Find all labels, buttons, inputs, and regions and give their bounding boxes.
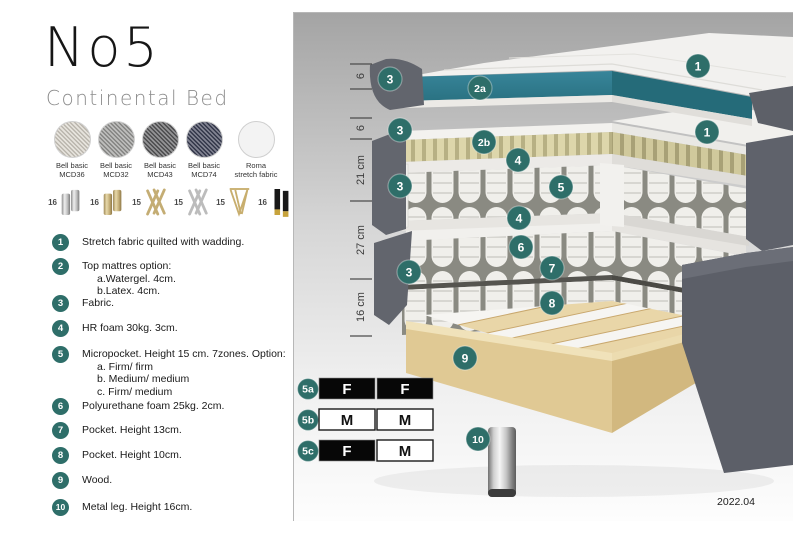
callout-badge: 7 (540, 256, 564, 280)
fabric-name: Bell basic (188, 161, 220, 170)
product-subtitle: Continental Bed (46, 86, 229, 110)
firmness-cell: M (399, 412, 412, 429)
callout-badge: 2a (468, 76, 492, 100)
spec-text: Micropocket. Height 15 cm. 7zones. Optio… (82, 346, 286, 361)
spec-number-badge: 7 (52, 422, 69, 439)
fabric-swatch-circle (98, 121, 135, 158)
spec-item: 2 Top mattres option: a.Watergel. 4cm. b… (52, 258, 176, 298)
firmness-row-label: 5a (302, 384, 314, 396)
leg-height-label: 15 (212, 198, 225, 207)
spec-item: 10 Metal leg. Height 16cm. (52, 499, 192, 516)
fabric-code: stretch fabric (235, 170, 278, 179)
cylinder-gold-legs-icon (100, 186, 126, 218)
dimension-label: 6 (355, 73, 367, 79)
callout-badge: 3 (378, 67, 402, 91)
leg-height-label: 16 (44, 198, 57, 207)
callout-badge: 2b (472, 130, 496, 154)
fabric-swatch: Romastretch fabric (234, 121, 278, 179)
callout-badge: 1 (695, 120, 719, 144)
firmness-table: 5a F F 5b M M 5c F M (298, 378, 434, 462)
firmness-row-label: 5b (302, 415, 314, 427)
svg-text:1: 1 (695, 60, 702, 74)
leg-option: 16 (254, 186, 294, 218)
spec-option: c. Firm/ medium (97, 386, 286, 399)
front-leg (488, 427, 516, 497)
spec-number-badge: 2 (52, 258, 69, 275)
svg-text:3: 3 (397, 124, 404, 138)
spec-text: HR foam 30kg. 3cm. (82, 320, 178, 335)
bed-diagram-panel: 6 6 21 cm 27 cm 16 cm 3 2a 1 3 2b 1 4 5 … (293, 12, 793, 521)
fabric-name: Bell basic (144, 161, 176, 170)
spec-text: Fabric. (82, 295, 114, 310)
fabric-swatch-circle (238, 121, 275, 158)
spec-number-badge: 3 (52, 295, 69, 312)
spec-number-badge: 10 (52, 499, 69, 516)
svg-text:2b: 2b (478, 137, 490, 149)
cylinder-silver-legs-icon (58, 186, 84, 218)
svg-text:8: 8 (549, 297, 556, 311)
spec-number-badge: 8 (52, 447, 69, 464)
fabric-swatch-circle (186, 121, 223, 158)
leg-option: 15 (170, 186, 210, 218)
spec-sheet: No5 Continental Bed Bell basicMCD36 (0, 0, 800, 533)
leg-option: 15 (128, 186, 168, 218)
svg-text:10: 10 (472, 434, 484, 446)
callout-badge: 5 (549, 175, 573, 199)
spec-item: 5 Micropocket. Height 15 cm. 7zones. Opt… (52, 346, 286, 398)
callout-badge: 4 (506, 148, 530, 172)
fabric-swatch-circle (142, 121, 179, 158)
spec-item: 3 Fabric. (52, 295, 114, 312)
fabric-name: Bell basic (56, 161, 88, 170)
dimension-label: 6 (355, 125, 367, 131)
svg-text:4: 4 (516, 212, 523, 226)
version-label: 2022.04 (717, 496, 755, 508)
fabric-code: MCD74 (191, 170, 216, 179)
leg-height-label: 15 (170, 198, 183, 207)
firmness-cell: M (341, 412, 354, 429)
firmness-cell: F (342, 443, 351, 460)
svg-text:9: 9 (462, 352, 469, 366)
leg-height-label: 15 (128, 198, 141, 207)
spec-option: b. Medium/ medium (97, 373, 286, 386)
spec-number-badge: 9 (52, 472, 69, 489)
spec-item: 9 Wood. (52, 472, 112, 489)
floor-shadow (374, 465, 774, 497)
spec-item: 7 Pocket. Height 13cm. (52, 422, 182, 439)
callout-badge: 1 (686, 54, 710, 78)
svg-text:3: 3 (387, 73, 394, 87)
spec-option: a.Watergel. 4cm. (97, 273, 176, 286)
fabric-swatch-circle (54, 121, 91, 158)
leg-height-label: 16 (86, 198, 99, 207)
fabric-swatches: Bell basicMCD36 Bell basicMCD32 Bell bas… (50, 121, 278, 179)
spec-item: 1 Stretch fabric quilted with wadding. (52, 234, 244, 251)
svg-text:1: 1 (704, 126, 711, 140)
svg-text:4: 4 (515, 154, 522, 168)
spec-text: Stretch fabric quilted with wadding. (82, 234, 244, 249)
firmness-row-label: 5c (302, 446, 314, 458)
spec-text: Metal leg. Height 16cm. (82, 499, 192, 514)
spec-number-badge: 5 (52, 346, 69, 363)
fabric-name: Roma (246, 161, 266, 170)
spec-text: Wood. (82, 472, 112, 487)
tapered-black-legs-icon (268, 186, 294, 218)
micropocket-springs (398, 165, 612, 221)
leg-options: 16 16 15 1 (44, 186, 296, 218)
callout-badge: 3 (388, 174, 412, 198)
callout-badge: 9 (453, 346, 477, 370)
callout-badge: 3 (397, 260, 421, 284)
spec-item: 8 Pocket. Height 10cm. (52, 447, 182, 464)
leg-option: 15 (212, 186, 252, 218)
svg-text:3: 3 (406, 266, 413, 280)
spec-number-badge: 4 (52, 320, 69, 337)
callout-badge: 4 (507, 206, 531, 230)
spec-option: a. Firm/ firm (97, 361, 286, 374)
svg-text:6: 6 (518, 241, 525, 255)
fabric-swatch: Bell basicMCD43 (138, 121, 182, 179)
cross-gold-legs-icon (142, 186, 168, 218)
leg-option: 16 (44, 186, 84, 218)
firmness-cell: F (400, 381, 409, 398)
hairpin-legs-icon (226, 186, 252, 218)
svg-text:5: 5 (558, 181, 565, 195)
spec-number-badge: 1 (52, 234, 69, 251)
firmness-cell: M (399, 443, 412, 460)
fabric-name: Bell basic (100, 161, 132, 170)
fabric-code: MCD36 (59, 170, 84, 179)
spec-text: Pocket. Height 13cm. (82, 422, 182, 437)
spec-text: Pocket. Height 10cm. (82, 447, 182, 462)
fabric-swatch: Bell basicMCD74 (182, 121, 226, 179)
callout-badge: 6 (509, 235, 533, 259)
svg-text:7: 7 (549, 262, 556, 276)
cross-silver-legs-icon (184, 186, 210, 218)
dimension-label: 27 cm (355, 225, 367, 255)
svg-text:3: 3 (397, 180, 404, 194)
spec-text: Polyurethane foam 25kg. 2cm. (82, 398, 224, 413)
dimension-label: 21 cm (355, 155, 367, 185)
leg-option: 16 (86, 186, 126, 218)
fabric-code: MCD32 (103, 170, 128, 179)
product-title: No5 (44, 16, 161, 79)
dimension-label: 16 cm (355, 292, 367, 322)
spec-text: Top mattres option: (82, 258, 176, 273)
left-panel: No5 Continental Bed Bell basicMCD36 (0, 0, 293, 533)
callout-badge: 10 (466, 427, 490, 451)
fabric-swatch: Bell basicMCD36 (50, 121, 94, 179)
spec-item: 4 HR foam 30kg. 3cm. (52, 320, 178, 337)
fabric-swatch: Bell basicMCD32 (94, 121, 138, 179)
bed-diagram: 6 6 21 cm 27 cm 16 cm 3 2a 1 3 2b 1 4 5 … (294, 13, 793, 521)
fabric-code: MCD43 (147, 170, 172, 179)
callout-badge: 8 (540, 291, 564, 315)
spec-item: 6 Polyurethane foam 25kg. 2cm. (52, 398, 224, 415)
spec-number-badge: 6 (52, 398, 69, 415)
callout-badge: 3 (388, 118, 412, 142)
leg-height-label: 16 (254, 198, 267, 207)
firmness-cell: F (342, 381, 351, 398)
svg-text:2a: 2a (474, 83, 486, 95)
